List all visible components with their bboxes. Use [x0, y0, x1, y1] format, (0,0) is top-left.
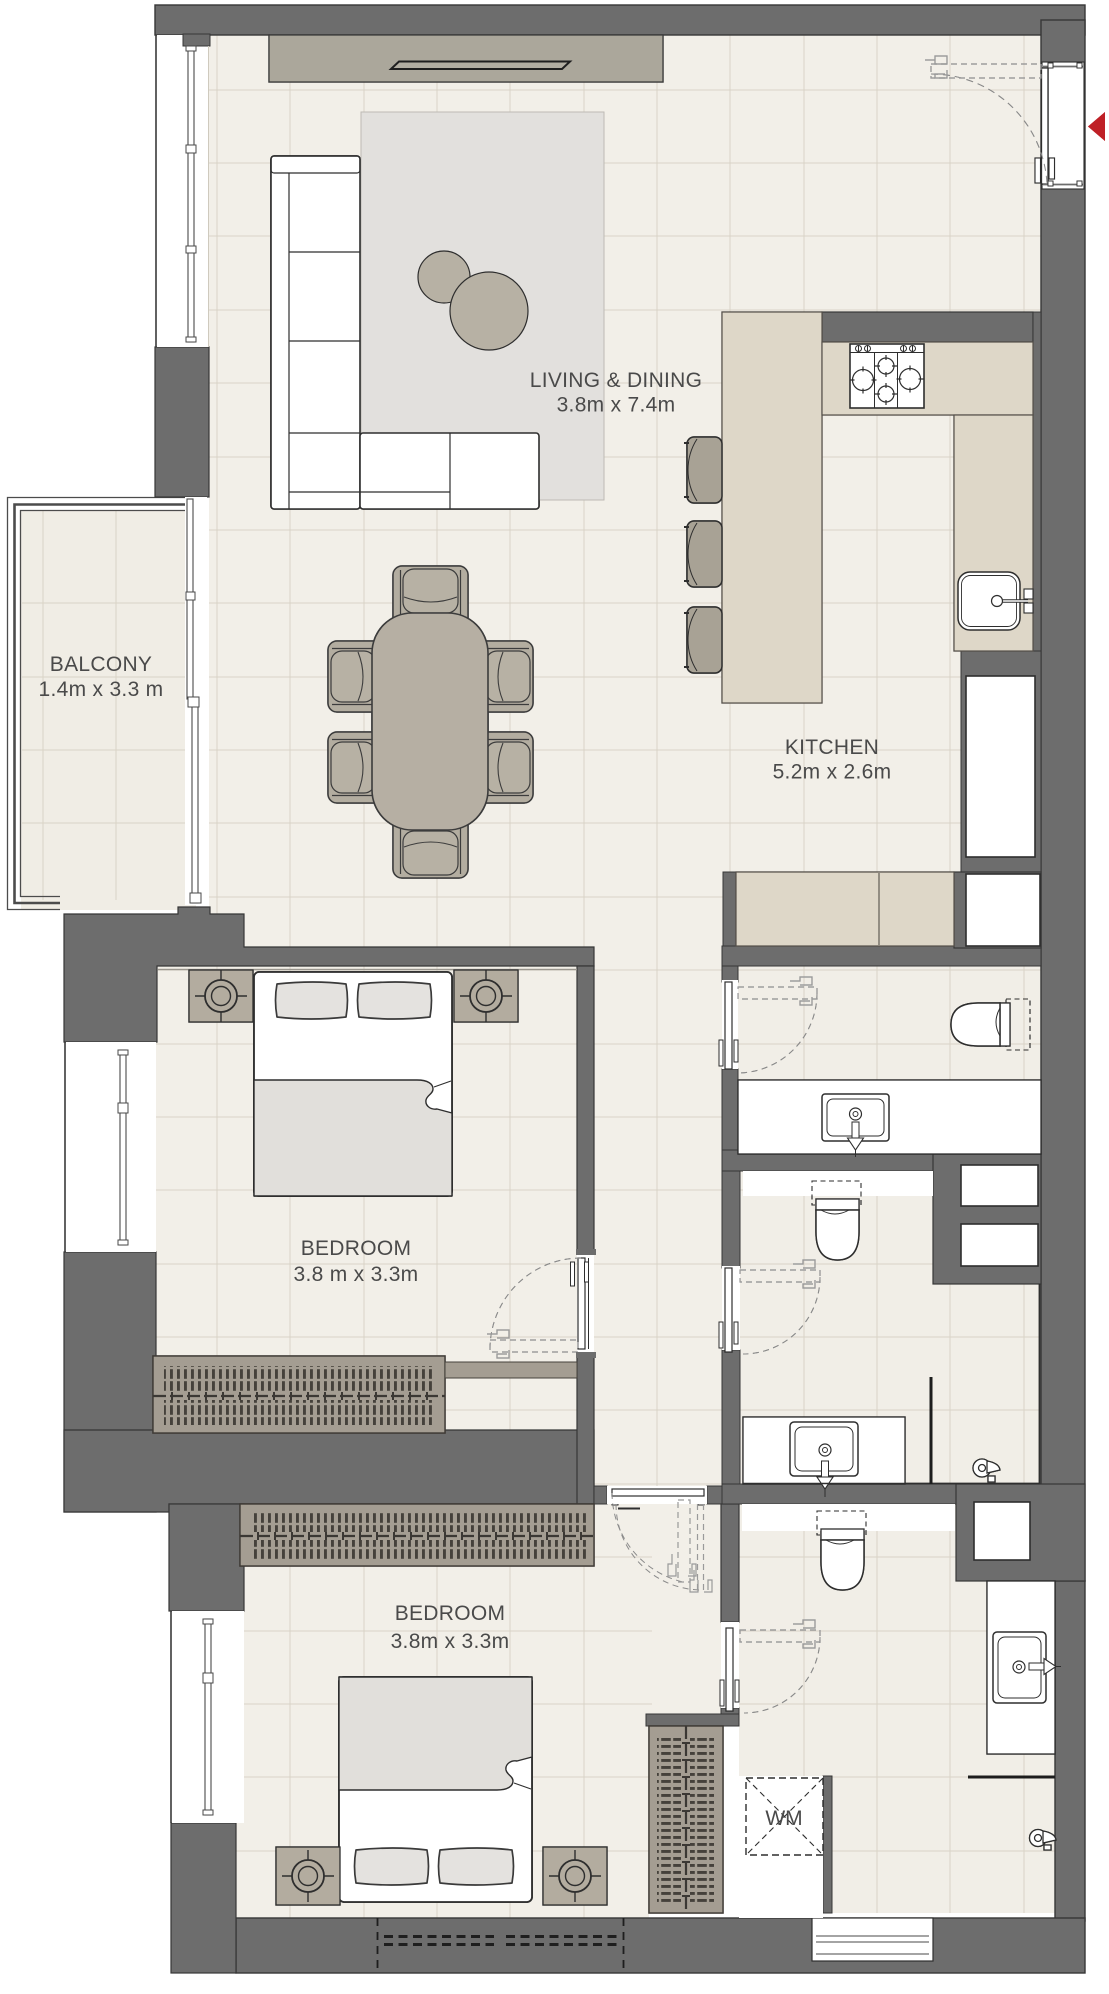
svg-text:BEDROOM: BEDROOM — [301, 1237, 412, 1260]
svg-text:WM: WM — [765, 1807, 802, 1830]
svg-text:BALCONY: BALCONY — [50, 653, 152, 676]
svg-text:3.8m x 3.3m: 3.8m x 3.3m — [391, 1630, 510, 1653]
svg-text:KITCHEN: KITCHEN — [785, 736, 879, 759]
svg-text:1.4m x 3.3 m: 1.4m x 3.3 m — [39, 678, 164, 701]
svg-text:3.8m x 7.4m: 3.8m x 7.4m — [557, 394, 676, 417]
svg-text:5.2m x 2.6m: 5.2m x 2.6m — [773, 761, 892, 784]
svg-text:3.8 m x 3.3m: 3.8 m x 3.3m — [294, 1263, 419, 1286]
svg-text:LIVING & DINING: LIVING & DINING — [530, 369, 703, 392]
svg-text:BEDROOM: BEDROOM — [395, 1602, 506, 1625]
